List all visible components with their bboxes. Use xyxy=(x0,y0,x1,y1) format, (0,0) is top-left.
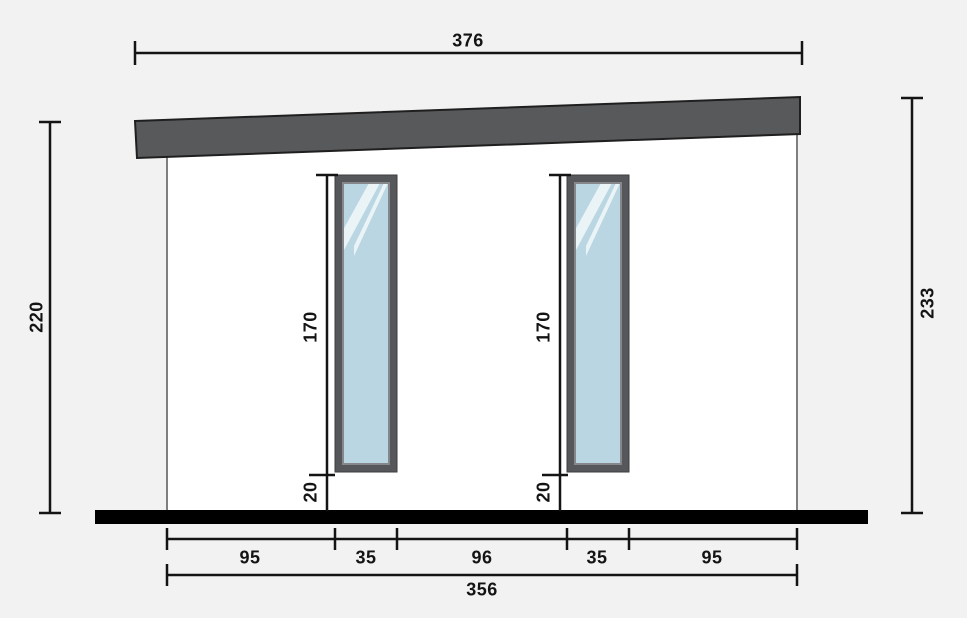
dim-label-segment-4: 35 xyxy=(586,548,607,569)
wall xyxy=(167,128,797,512)
dim-label-window-2-height: 170 xyxy=(534,311,555,343)
floor-slab xyxy=(95,510,868,524)
elevation-drawing xyxy=(0,0,967,618)
dim-label-window-1-offset: 20 xyxy=(301,481,322,502)
dim-label-segment-5: 95 xyxy=(701,548,722,569)
dim-label-wall-height-left: 220 xyxy=(27,301,48,333)
dim-label-segment-2: 35 xyxy=(355,548,376,569)
dim-label-segment-1: 95 xyxy=(239,548,260,569)
window-2 xyxy=(567,175,629,472)
dim-label-roof-width: 376 xyxy=(452,31,484,52)
dim-label-window-1-height: 170 xyxy=(301,311,322,343)
dim-label-window-2-offset: 20 xyxy=(534,481,555,502)
dim-label-base-total: 356 xyxy=(466,580,498,601)
elevation-diagram: 376 220 233 170 170 20 20 95 35 96 35 95… xyxy=(0,0,967,618)
window-1 xyxy=(335,175,397,472)
dim-label-segment-3: 96 xyxy=(471,548,492,569)
dim-label-overall-height-right: 233 xyxy=(918,287,939,319)
